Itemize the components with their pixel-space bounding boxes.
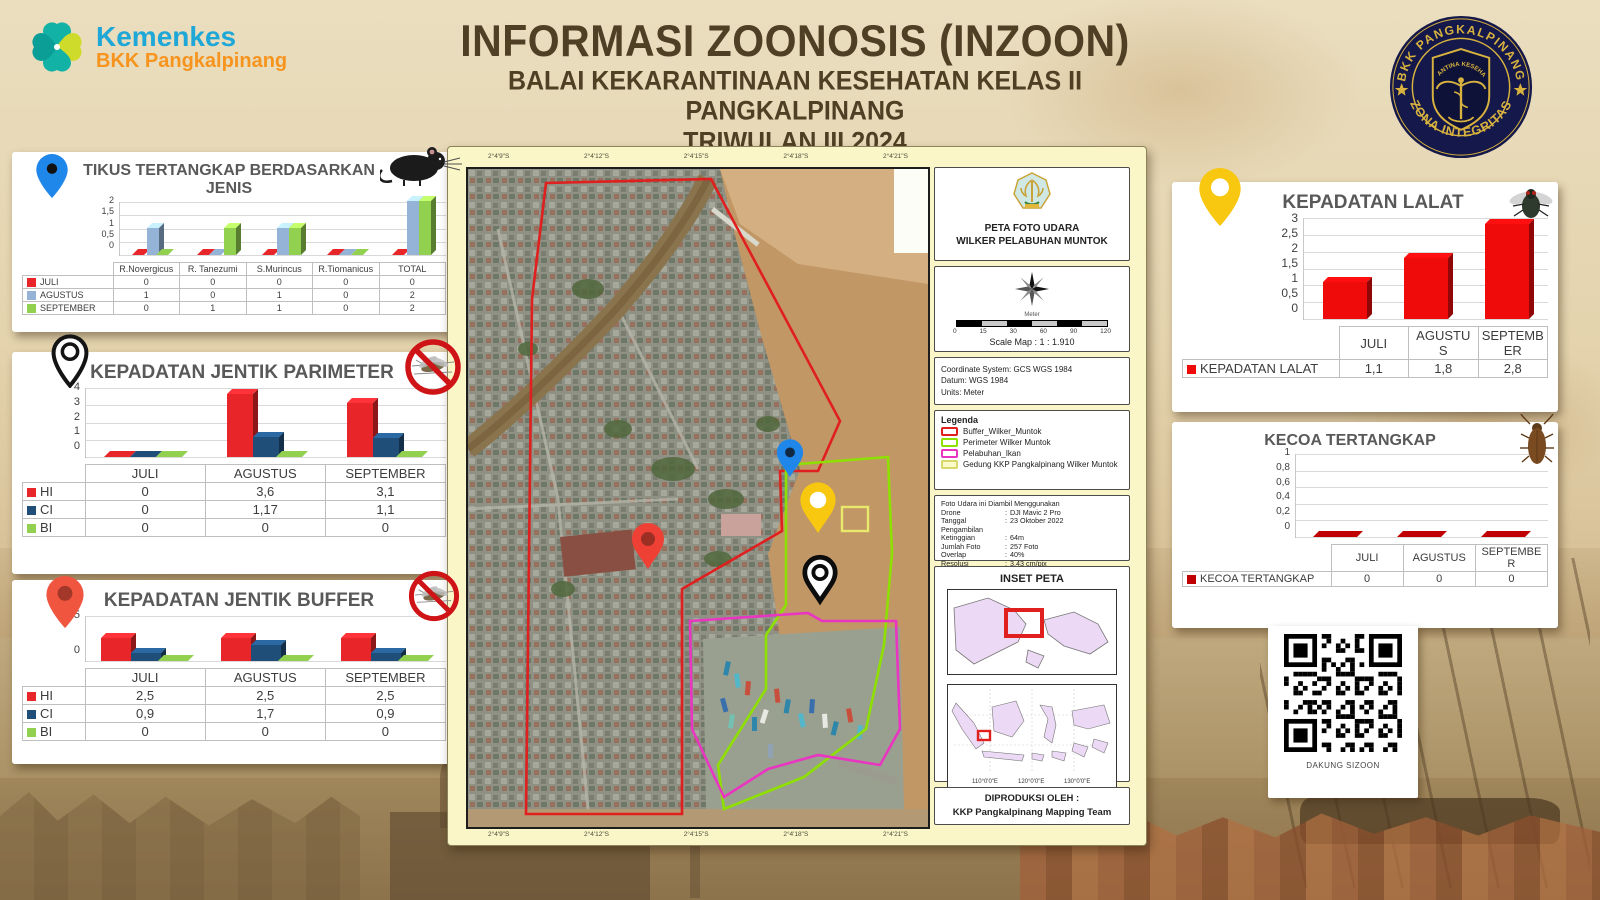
legend-swatch [27, 506, 36, 515]
chart-table: JULIAGUSTUSSEPTEMBERKEPADATAN LALAT1,11,… [1182, 326, 1548, 378]
column-header: JULI [85, 669, 205, 687]
row-header: BI [23, 519, 86, 537]
scale-unit: Meter [941, 312, 1123, 318]
column-header: SEPTEMBER [1475, 545, 1547, 572]
chart-table: JULIAGUSTUSSEPTEMBERHI03,63,1CI01,171,1B… [22, 464, 446, 537]
value-cell: 2 [379, 302, 446, 315]
y-tick-label: 1,5 [101, 207, 114, 216]
chart-plot: 21,510,50 [86, 202, 446, 256]
zona-integritas-badge: BKK PANGKALPINANG ZONA INTEGRITAS KARANT… [1388, 14, 1534, 160]
bar-group [1323, 282, 1367, 319]
coord-line: Units: Meter [941, 387, 1123, 399]
value-cell: 0 [325, 723, 445, 741]
card-kepadatan-lalat-chart: KEPADATAN LALAT 32,521,510,50JULIAGUSTUS… [1172, 182, 1558, 412]
value-cell: 0 [113, 302, 180, 315]
legend-label: Buffer_Wilker_Muntok [963, 427, 1042, 436]
rat-icon [380, 144, 466, 193]
legend-swatch [27, 291, 36, 300]
produced-line2: KKP Pangkalpinang Mapping Team [941, 806, 1123, 820]
y-tick-label: 2 [109, 196, 114, 205]
table-corner [1183, 327, 1340, 360]
bar-hi [227, 394, 253, 457]
value-cell: 0 [85, 501, 205, 519]
map-tick-label: 2°4'15"S [684, 831, 709, 838]
compass-scale-box: Meter 015306090120 Scale Map : 1 : 1.910 [934, 266, 1130, 352]
qr-code-image [1284, 634, 1402, 752]
plot-area [1303, 218, 1548, 320]
table-row: SEPTEMBER01102 [23, 302, 446, 315]
y-tick-label: 3 [1291, 212, 1298, 224]
value-cell: 1 [246, 302, 313, 315]
value-cell: 1,7 [205, 705, 325, 723]
card-jentik-parimeter-chart: KEPADATAN JENTIK PARIMETER 43210JULIAGUS… [12, 352, 456, 574]
plot-area [119, 202, 446, 256]
scale-number: 15 [980, 328, 987, 335]
legend-label: Pelabuhan_Ikan [963, 449, 1021, 458]
drone-info-key: Tanggal Pengambilan [941, 517, 1005, 534]
pink-roof-building [721, 514, 761, 536]
series-name: HI [40, 484, 53, 499]
bar-groups [86, 616, 446, 661]
column-header: AGUSTUS [1409, 327, 1479, 360]
value-cell: 3,6 [205, 483, 325, 501]
photo-notch [894, 169, 928, 253]
brand-subname: BKK Pangkalpinang [96, 51, 287, 71]
painting-town-silhouette [0, 780, 360, 900]
gridline [1304, 319, 1548, 320]
map-title-box: PETA FOTO UDARA WILKER PELABUHAN MUNTOK [934, 167, 1130, 261]
bar-september [224, 228, 236, 255]
value-cell: 2,8 [1478, 360, 1548, 378]
y-tick-label: 1 [74, 426, 80, 437]
value-cell: 1 [180, 302, 247, 315]
column-header: SEPTEMBER [1478, 327, 1548, 360]
produced-by-box: DIPRODUKSI OLEH : KKP Pangkalpinang Mapp… [934, 787, 1130, 826]
value-cell: 0 [1331, 572, 1403, 587]
series-name: HI [40, 688, 53, 703]
bar-group [101, 638, 191, 661]
bar-group [1484, 531, 1528, 537]
legend-swatch [27, 304, 36, 313]
no-mosquito-icon [406, 568, 462, 629]
header-row: R.NovergicusR. TanezumiS.MurincusR.Tioma… [23, 263, 446, 276]
y-tick-label: 0 [1291, 302, 1298, 314]
map-tick-label: 2°4'9"S [488, 831, 509, 838]
legend-label: Perimeter Wilker Muntok [963, 438, 1051, 447]
y-axis-labels: 32,521,510,50 [1270, 212, 1303, 314]
legend-item: Gedung KKP Pangkalpinang Wilker Muntok [941, 460, 1123, 469]
series-name: JULI [40, 277, 59, 287]
plot-area [85, 388, 446, 458]
table-row: AGUSTUS10102 [23, 289, 446, 302]
bar-groups [120, 202, 446, 255]
coord-line: Datum: WGS 1984 [941, 375, 1123, 387]
chart-plot: 10,80,60,40,20 [1262, 454, 1548, 538]
inset-lon-label: 110°0'0"E [972, 779, 998, 785]
gridline [120, 255, 446, 256]
y-axis-labels: 21,510,50 [86, 196, 119, 250]
table-corner [23, 669, 86, 687]
map-tick-label: 2°4'18"S [783, 153, 808, 160]
value-cell: 1,8 [1409, 360, 1479, 378]
card-tikus-chart: TIKUS TERTANGKAP BERDASARKAN JENIS 21,51… [12, 152, 456, 332]
map-pin-yellow-icon [1198, 168, 1242, 231]
bar-september [419, 201, 431, 255]
series-name: BI [40, 520, 52, 535]
page-subtitle: BALAI KEKARANTINAAN KESEHATAN KELAS II P… [430, 67, 1160, 126]
column-header: AGUSTUS [205, 465, 325, 483]
bar-bi [278, 655, 314, 661]
legend-swatch [1187, 365, 1196, 374]
jentik-parimeter-chart: 43210JULIAGUSTUSSEPTEMBERHI03,63,1CI01,1… [22, 388, 446, 537]
chart-plot: 32,521,510,50 [1270, 218, 1548, 320]
row-header: CI [23, 501, 86, 519]
no-mosquito-icon [402, 336, 464, 403]
card-jentik-buffer-chart: KEPADATAN JENTIK BUFFER 50JULIAGUSTUSSEP… [12, 580, 456, 764]
value-cell: 3,1 [325, 483, 445, 501]
bar-groups [1304, 218, 1548, 319]
value-cell: 0,9 [85, 705, 205, 723]
gridline [1296, 537, 1548, 538]
map-tick-label: 2°4'12"S [584, 831, 609, 838]
drone-info-row: Tanggal Pengambilan:23 Oktober 2022 [941, 517, 1123, 534]
value-cell: 2,5 [85, 687, 205, 705]
legend-swatch [27, 524, 36, 533]
map-title-line1: PETA FOTO UDARA [941, 222, 1123, 235]
bar-kepadatan-lalat [1323, 282, 1367, 319]
bar-september [289, 228, 301, 255]
legend-swatch [941, 427, 958, 436]
kecoa-chart: 10,80,60,40,20JULIAGUSTUSSEPTEMBERKECOA … [1182, 454, 1548, 587]
drone-info-row: Jumlah Foto:257 Foto [941, 543, 1123, 551]
qr-card: DAKUNG SIZOON [1268, 626, 1418, 798]
table-row: BI000 [23, 519, 446, 537]
value-cell: 0 [379, 276, 446, 289]
table-corner [23, 263, 114, 276]
row-header: KEPADATAN LALAT [1183, 360, 1340, 378]
column-header: JULI [1331, 545, 1403, 572]
scale-number: 0 [953, 328, 957, 335]
map-tick-label: 2°4'15"S [684, 153, 709, 160]
legend-box: Legenda Buffer_Wilker_MuntokPerimeter Wi… [934, 410, 1130, 490]
series-name: CI [40, 502, 53, 517]
chart-table: R.NovergicusR. TanezumiS.MurincusR.Tioma… [22, 262, 446, 315]
chart-plot: 50 [52, 616, 446, 662]
table-corner [23, 465, 86, 483]
bar-ci [131, 653, 161, 661]
drone-info-value: 257 Foto [1010, 543, 1123, 551]
bar-group [330, 249, 366, 255]
inset-title: INSET PETA [941, 573, 1123, 585]
column-header: TOTAL [379, 263, 446, 276]
y-tick-label: 0,5 [1281, 287, 1298, 299]
bar-agustus [407, 201, 419, 255]
kemenkes-logo: Kemenkes BKK Pangkalpinang [28, 18, 287, 76]
y-tick-label: 0,4 [1276, 492, 1290, 502]
value-cell: 0 [113, 276, 180, 289]
port-emblem-icon [1012, 172, 1052, 214]
bar-group [135, 228, 171, 255]
column-header: S.Murincus [246, 263, 313, 276]
column-header: SEPTEMBER [325, 669, 445, 687]
value-cell: 1 [113, 289, 180, 302]
table-corner [1183, 545, 1332, 572]
chart-table: JULIAGUSTUSSEPTEMBERHI2,52,52,5CI0,91,70… [22, 668, 446, 741]
chart-title: KEPADATAN JENTIK BUFFER [82, 590, 396, 612]
map-ticks-top: 2°4'9"S2°4'12"S2°4'15"S2°4'18"S2°4'21"S [466, 153, 930, 160]
bar-group [1404, 258, 1448, 319]
page-title: INFORMASI ZOONOSIS (INZOON) [430, 18, 1160, 64]
badge-emblem-icon: BKK PANGKALPINANG ZONA INTEGRITAS KARANT… [1388, 14, 1534, 160]
series-name: CI [40, 706, 53, 721]
legend-item: Pelabuhan_Ikan [941, 449, 1123, 458]
value-cell: 0 [205, 519, 325, 537]
row-header: BI [23, 723, 86, 741]
value-cell: 0 [313, 276, 380, 289]
y-tick-label: 2,5 [1281, 227, 1298, 239]
value-cell: 1,1 [325, 501, 445, 519]
drone-intro: Foto Udara ini Diambil Menggunakan [941, 500, 1123, 508]
table-row: BI000 [23, 723, 446, 741]
inset-map-bangka [947, 589, 1117, 675]
y-tick-label: 0 [109, 241, 114, 250]
red-roof-building [560, 529, 636, 576]
qr-code [1268, 634, 1418, 757]
legend-swatch [941, 460, 958, 469]
value-cell: 0 [85, 723, 205, 741]
chart-title: KECOA TERTANGKAP [1182, 432, 1518, 450]
column-header: R.Novergicus [113, 263, 180, 276]
bar-kecoa-tertangkap [1397, 531, 1447, 537]
bar-group [395, 201, 431, 255]
inset-lon-label: 130°0'0"E [1064, 779, 1090, 785]
column-header: SEPTEMBER [325, 465, 445, 483]
map-info-panel: PETA FOTO UDARA WILKER PELABUHAN MUNTOK … [934, 167, 1130, 825]
map-ticks-bottom: 2°4'9"S2°4'12"S2°4'15"S2°4'18"S2°4'21"S [466, 831, 930, 838]
kemenkes-clover-icon [28, 18, 86, 76]
bar-group [265, 228, 301, 255]
value-cell: 2,5 [205, 687, 325, 705]
aerial-photo-map [468, 169, 928, 827]
column-header: JULI [85, 465, 205, 483]
bar-group [227, 394, 305, 457]
y-tick-label: 2 [1291, 242, 1298, 254]
map-tick-label: 2°4'12"S [584, 153, 609, 160]
value-cell: 0 [205, 723, 325, 741]
row-header: AGUSTUS [23, 289, 114, 302]
produced-line1: DIPRODUKSI OLEH : [941, 792, 1123, 806]
row-header: JULI [23, 276, 114, 289]
bar-kepadatan-lalat [1485, 224, 1529, 319]
inset-map-indonesia: 110°0'0"E 120°0'0"E 130°0'0"E [947, 684, 1117, 790]
y-tick-label: 1,5 [1281, 257, 1298, 269]
value-cell: 0 [313, 302, 380, 315]
plot-area [1295, 454, 1548, 538]
scale-bar [956, 320, 1108, 327]
y-tick-label: 1 [109, 219, 114, 228]
value-cell: 0 [1475, 572, 1547, 587]
y-tick-label: 0 [74, 645, 80, 656]
bar-ci [373, 438, 399, 457]
map-frame [466, 167, 930, 829]
cockroach-icon [1520, 414, 1554, 475]
value-cell: 0 [246, 276, 313, 289]
bar-group [347, 403, 425, 457]
poster-title-block: INFORMASI ZOONOSIS (INZOON) BALAI KEKARA… [430, 20, 1160, 157]
scale-numbers: 015306090120 [953, 328, 1111, 335]
series-name: KEPADATAN LALAT [1200, 361, 1318, 376]
map-tick-label: 2°4'18"S [783, 831, 808, 838]
bar-bi [398, 655, 434, 661]
qr-caption: DAKUNG SIZOON [1268, 761, 1418, 770]
poster-root: Kemenkes BKK Pangkalpinang INFORMASI ZOO… [0, 0, 1600, 900]
value-cell: 0 [180, 289, 247, 302]
map-tick-label: 2°4'21"S [883, 153, 908, 160]
series-name: AGUSTUS [40, 290, 84, 300]
bar-group [200, 228, 236, 255]
value-cell: 0 [313, 289, 380, 302]
chart-table: JULIAGUSTUSSEPTEMBERKECOA TERTANGKAP000 [1182, 544, 1548, 587]
bar-agustus [147, 228, 159, 255]
chart-plot: 43210 [52, 388, 446, 458]
card-kecoa-chart: KECOA TERTANGKAP 10,80,60,40,20JULIAGUST… [1172, 422, 1558, 628]
scale-number: 30 [1010, 328, 1017, 335]
row-header: HI [23, 483, 86, 501]
column-header: R. Tanezumi [180, 263, 247, 276]
series-name: KECOA TERTANGKAP [1200, 573, 1314, 585]
y-tick-label: 0,2 [1276, 507, 1290, 517]
value-cell: 0 [325, 519, 445, 537]
value-cell: 0 [85, 483, 205, 501]
drone-info-value: 23 Oktober 2022 [1010, 517, 1123, 534]
bar-group [1400, 531, 1444, 537]
bar-group [221, 638, 311, 661]
bar-bi [276, 451, 308, 457]
row-header: KECOA TERTANGKAP [1183, 572, 1332, 587]
chart-title: KEPADATAN JENTIK PARIMETER [88, 362, 396, 384]
bar-group [1316, 531, 1360, 537]
bar-ci [251, 645, 281, 661]
bar-group [1485, 224, 1529, 319]
gridline [86, 457, 446, 458]
value-cell: 0 [85, 519, 205, 537]
drone-rows: Drone:DJI Mavic 2 ProTanggal Pengambilan… [941, 509, 1123, 568]
y-tick-label: 1 [1291, 272, 1298, 284]
y-tick-label: 3 [74, 397, 80, 408]
bar-groups [1296, 454, 1548, 537]
plot-area [85, 616, 446, 662]
table-row: HI2,52,52,5 [23, 687, 446, 705]
jentik-buffer-chart: 50JULIAGUSTUSSEPTEMBERHI2,52,52,5CI0,91,… [22, 616, 446, 741]
chart-title: KEPADATAN LALAT [1238, 192, 1508, 214]
y-tick-label: 2 [74, 412, 80, 423]
scale-number: 120 [1100, 328, 1111, 335]
bar-bi [158, 655, 194, 661]
bar-kepadatan-lalat [1404, 258, 1448, 319]
tikus-chart: 21,510,50R.NovergicusR. TanezumiS.Murinc… [22, 202, 446, 315]
brand-name: Kemenkes [96, 23, 287, 52]
table-row: CI0,91,70,9 [23, 705, 446, 723]
bar-agustus [277, 228, 289, 255]
y-tick-label: 0,8 [1276, 463, 1290, 473]
drone-info-box: Foto Udara ini Diambil Menggunakan Drone… [934, 495, 1130, 561]
legend-title: Legenda [941, 415, 1123, 425]
value-cell: 1 [246, 289, 313, 302]
table-row: CI01,171,1 [23, 501, 446, 519]
map-pin-blue-icon [36, 154, 68, 203]
y-tick-label: 0 [1284, 522, 1290, 532]
column-header: R.Tiomanicus [313, 263, 380, 276]
kepadatan-lalat-chart: 32,521,510,50JULIAGUSTUSSEPTEMBERKEPADAT… [1182, 218, 1548, 378]
bar-group [341, 638, 431, 661]
legend-swatch [941, 449, 958, 458]
scale-label: Scale Map : 1 : 1.910 [941, 337, 1123, 347]
bar-bi [396, 451, 428, 457]
row-header: CI [23, 705, 86, 723]
gridline [86, 661, 446, 662]
column-header: JULI [1339, 327, 1409, 360]
value-cell: 0 [1403, 572, 1475, 587]
bar-hi [341, 638, 371, 661]
bar-bi [156, 451, 188, 457]
legend-swatch [1187, 575, 1196, 584]
y-tick-label: 1 [1284, 448, 1290, 458]
table-row: KEPADATAN LALAT1,11,82,8 [1183, 360, 1548, 378]
map-tick-label: 2°4'21"S [883, 831, 908, 838]
value-cell: 2,5 [325, 687, 445, 705]
coordinate-system-box: Coordinate System: GCS WGS 1984 Datum: W… [934, 357, 1130, 405]
bottom-beach [468, 809, 928, 827]
legend-item: Perimeter Wilker Muntok [941, 438, 1123, 447]
series-name: SEPTEMBER [40, 303, 96, 313]
bar-kecoa-tertangkap [1481, 531, 1531, 537]
bar-hi [347, 403, 373, 457]
map-pin-outline-icon [50, 334, 90, 393]
scale-number: 60 [1040, 328, 1047, 335]
chart-title: TIKUS TERTANGKAP BERDASARKAN JENIS [72, 162, 386, 198]
y-tick-label: 0 [74, 441, 80, 452]
y-axis-labels: 10,80,60,40,20 [1262, 448, 1295, 532]
legend-swatch [27, 710, 36, 719]
header-row: JULIAGUSTUSSEPTEMBER [23, 465, 446, 483]
value-cell: 1,1 [1339, 360, 1409, 378]
bar-ci [371, 653, 401, 661]
map-card: 2°4'9"S2°4'12"S2°4'15"S2°4'18"S2°4'21"S … [447, 146, 1147, 846]
column-header: AGUSTUS [205, 669, 325, 687]
y-tick-label: 0,6 [1276, 478, 1290, 488]
bar-ci [253, 437, 279, 457]
legend-item: Buffer_Wilker_Muntok [941, 427, 1123, 436]
series-name: BI [40, 724, 52, 739]
map-title-line2: WILKER PELABUHAN MUNTOK [941, 235, 1123, 248]
table-row: HI03,63,1 [23, 483, 446, 501]
header-row: JULIAGUSTUSSEPTEMBER [1183, 327, 1548, 360]
table-row: KECOA TERTANGKAP000 [1183, 572, 1548, 587]
inset-lon-label: 120°0'0"E [1018, 779, 1044, 785]
header-row: JULIAGUSTUSSEPTEMBER [23, 669, 446, 687]
inset-map-box: INSET PETA [934, 566, 1130, 782]
scale-number: 90 [1070, 328, 1077, 335]
y-tick-label: 0,5 [101, 230, 114, 239]
value-cell: 2 [379, 289, 446, 302]
legend-swatch [27, 278, 36, 287]
fly-icon [1506, 182, 1556, 227]
bar-groups [86, 388, 446, 457]
column-header: AGUSTUS [1403, 545, 1475, 572]
value-cell: 0 [180, 276, 247, 289]
legend-items: Buffer_Wilker_MuntokPerimeter Wilker Mun… [941, 427, 1123, 469]
row-header: HI [23, 687, 86, 705]
